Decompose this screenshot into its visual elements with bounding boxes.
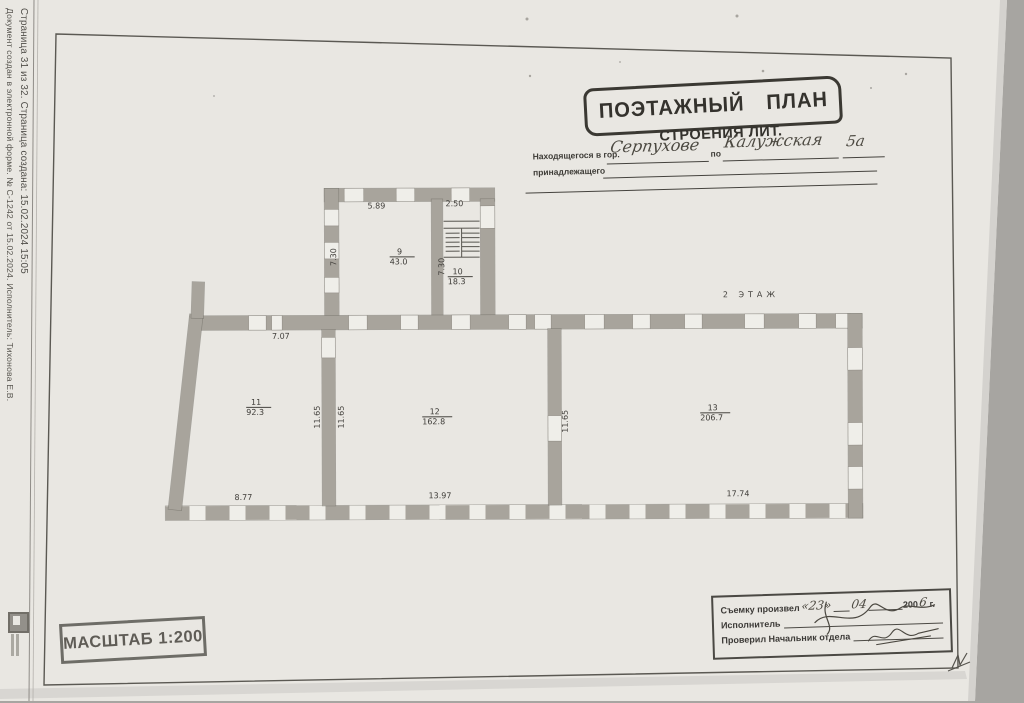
window-opening — [396, 188, 414, 201]
window-opening — [848, 467, 862, 489]
survey-row-1: Съемку произвел «23» 04 200 6 г. — [720, 595, 942, 616]
window-opening — [344, 189, 363, 202]
room-label-13: 13 206.7 — [700, 403, 730, 422]
month-handwritten: 04 — [851, 597, 868, 612]
room-area: 18.3 — [448, 277, 473, 286]
dim-wall12-13: 11.65 — [561, 409, 570, 433]
window-opening — [349, 316, 367, 330]
edoc-footer-line1: Документ создан в электронной форме. № С… — [5, 8, 15, 401]
dim-room10-top: 2.50 — [445, 199, 463, 208]
window-opening — [848, 423, 862, 445]
room-area: 92.3 — [246, 408, 271, 417]
blank-line — [843, 156, 885, 158]
window-opening — [745, 314, 764, 328]
window-opening — [585, 315, 604, 329]
window-opening — [848, 348, 862, 370]
window-opening — [480, 206, 494, 228]
survey-label-1: Съемку произвел — [720, 603, 799, 615]
window-opening — [685, 314, 702, 328]
blank-line — [607, 161, 709, 165]
emblem-caption-bar — [11, 634, 14, 656]
room-label-9: 9 43.0 — [390, 247, 415, 266]
dim-room11-bottom: 8.77 — [234, 493, 252, 502]
door-opening — [322, 338, 335, 358]
room-label-12: 12 162.8 — [422, 407, 452, 426]
survey-stamp: Съемку произвел «23» 04 200 6 г. Исполни… — [711, 588, 953, 660]
wall — [166, 504, 863, 520]
window-opening — [633, 315, 650, 329]
blank-line — [853, 628, 943, 642]
scanned-floor-plan-page: { "document": { "footer_line1": "Докумен… — [0, 0, 1024, 701]
blank-line — [526, 183, 878, 193]
emblem-icon — [8, 612, 29, 633]
window-opening — [401, 315, 418, 329]
survey-row-3: Проверил Начальник отдела — [721, 628, 943, 646]
blank-line — [783, 613, 943, 629]
year-printed: 200 — [903, 599, 918, 609]
dim-room13-bottom: 17.74 — [726, 489, 749, 498]
house-handwritten: 5а — [845, 132, 866, 151]
survey-label-3: Проверил Начальник отдела — [721, 631, 850, 645]
dim-wall11-12-right: 11.65 — [337, 405, 346, 429]
edoc-footer-line2: Страница 31 из 32. Страница создана: 15.… — [18, 8, 29, 274]
room-area: 206.7 — [700, 413, 730, 422]
staircase — [443, 212, 481, 264]
owner-label: принадлежащего — [533, 166, 605, 178]
room-number: 11 — [246, 398, 271, 408]
room-label-11: 11 92.3 — [246, 398, 271, 417]
emblem-caption-bar — [16, 634, 19, 656]
window-opening — [272, 316, 282, 330]
wall — [168, 314, 202, 510]
city-handwritten: Серпухове — [609, 135, 701, 156]
room-number: 9 — [390, 247, 415, 257]
wall — [191, 282, 204, 318]
survey-label-2: Исполнитель — [721, 619, 781, 631]
room-area: 43.0 — [390, 257, 415, 266]
room-number: 12 — [422, 407, 452, 417]
scale-stamp: МАСШТАБ 1:200 — [59, 616, 207, 664]
door-opening — [548, 416, 561, 441]
stamp-title: ПОЭТАЖНЫЙ ПЛАН — [598, 88, 828, 124]
window-opening — [535, 315, 551, 329]
window-opening — [249, 316, 266, 330]
address-block: Находящегося в гор. Серпухове по Калужск… — [526, 132, 880, 205]
window-opening — [325, 210, 339, 226]
blank-line — [723, 157, 839, 161]
scale-text: МАСШТАБ 1:200 — [63, 627, 204, 654]
window-opening — [452, 315, 470, 329]
window-opening — [799, 314, 816, 328]
floor-label: 2 ЭТАЖ — [723, 290, 779, 299]
room-label-10: 10 18.3 — [448, 267, 473, 286]
blank-line — [833, 600, 849, 611]
room-area: 162.8 — [422, 417, 452, 426]
window-opening — [509, 315, 526, 329]
street-handwritten: Калужская — [723, 130, 824, 152]
dim-room9-top: 5.89 — [367, 201, 385, 210]
room-number: 13 — [700, 403, 730, 413]
dim-room9-left: 7.30 — [329, 245, 338, 269]
dim-room10-left: 7.30 — [437, 255, 446, 279]
year-suffix: г. — [929, 599, 935, 609]
window-opening — [325, 278, 339, 293]
dim-room12-bottom: 13.97 — [428, 491, 451, 500]
year-handwritten: 6 — [919, 595, 929, 609]
po-label: по — [710, 149, 721, 159]
day-handwritten: «23» — [801, 598, 833, 613]
room-number: 10 — [448, 267, 473, 277]
blank-line — [603, 170, 877, 178]
located-label: Находящегося в гор. — [532, 149, 619, 161]
dim-wall11-12-left: 11.65 — [313, 405, 322, 429]
blank-line — [869, 599, 903, 611]
dim-room11-top: 7.07 — [272, 332, 290, 341]
